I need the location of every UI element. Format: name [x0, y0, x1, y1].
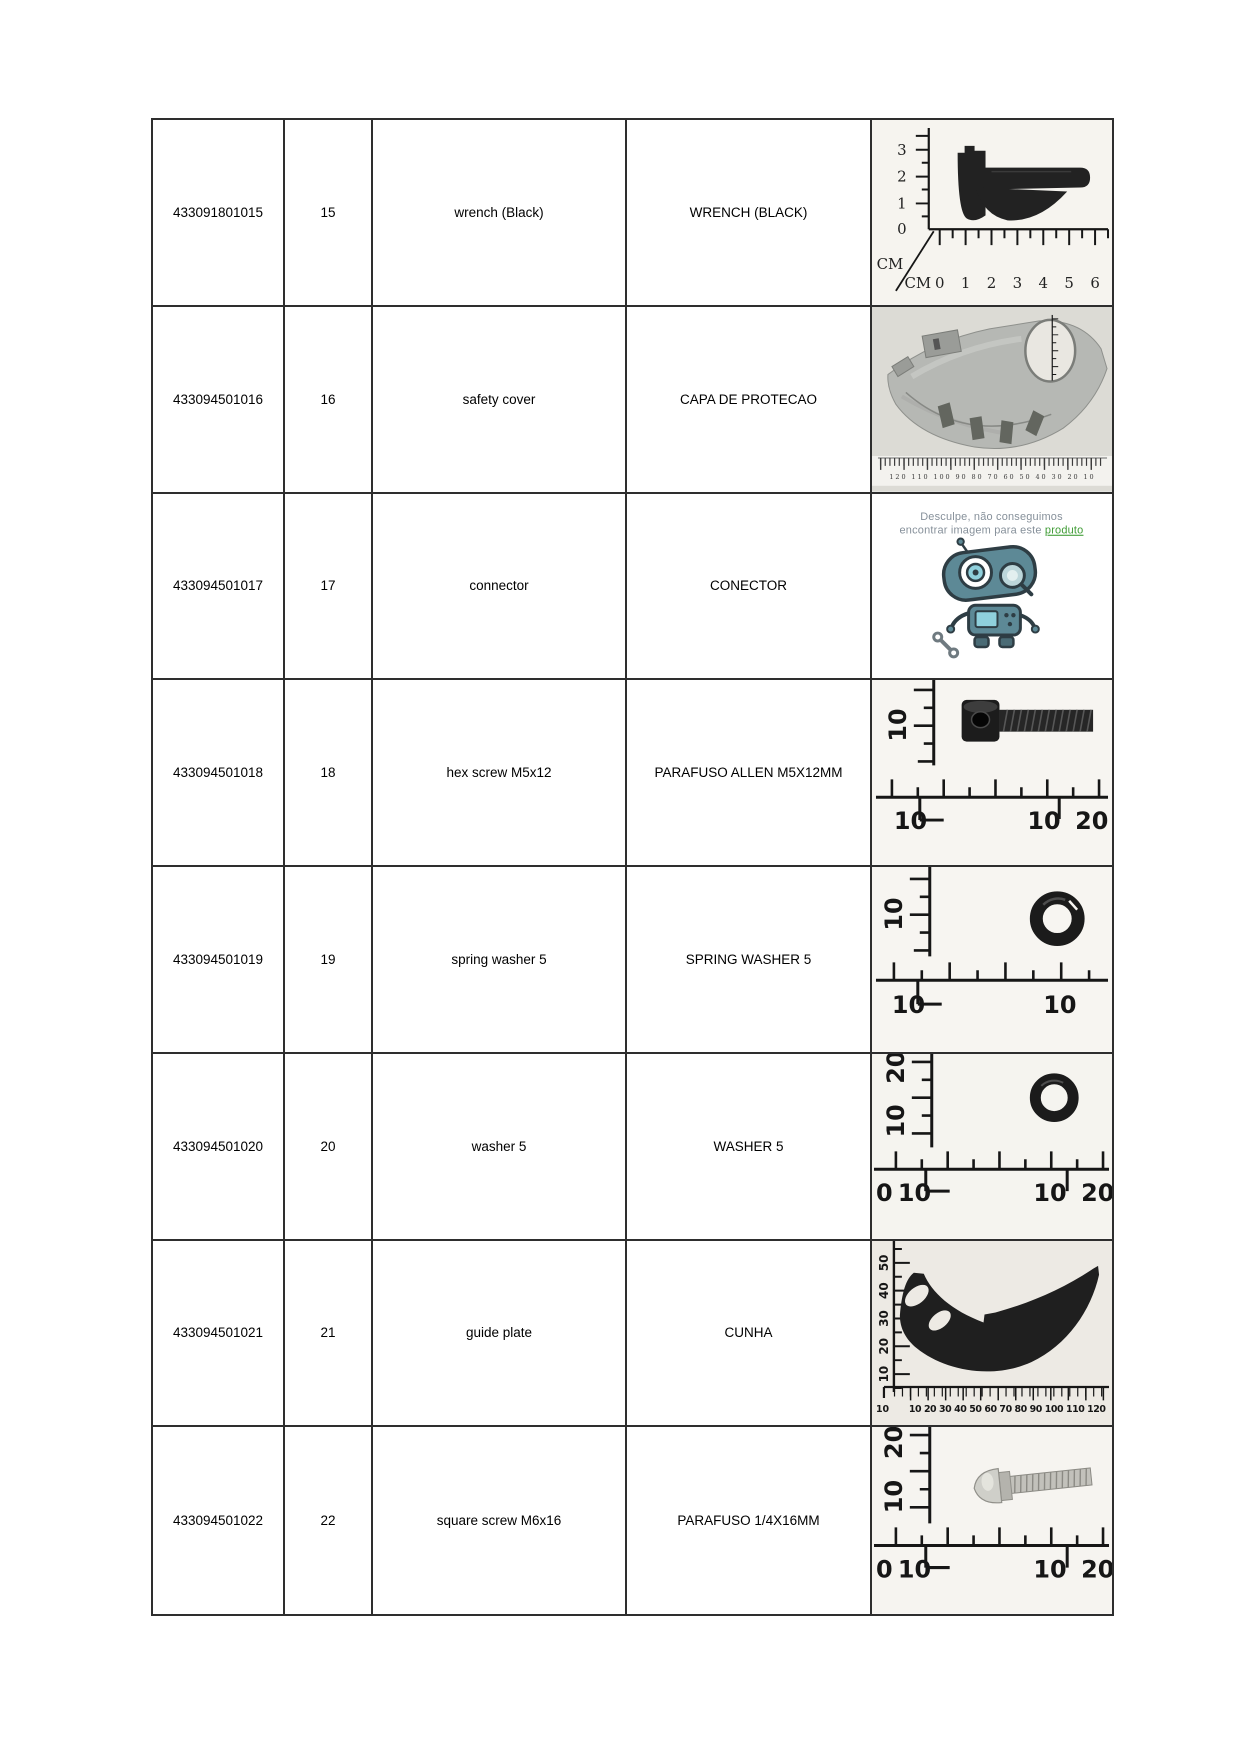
ruler-label: 20	[882, 1054, 910, 1084]
item-number: 22	[285, 1427, 373, 1614]
item-number: 19	[285, 867, 373, 1052]
description-pt: PARAFUSO ALLEN M5X12MM	[627, 680, 872, 865]
item-number: 18	[285, 680, 373, 865]
ruler-label: 0	[876, 1179, 893, 1207]
ruler-label: 10	[880, 1480, 908, 1514]
placeholder-text-line2: encontrar imagem para este produto	[900, 524, 1084, 536]
ruler-label: 10	[876, 1403, 890, 1414]
ruler-label: 10	[894, 807, 927, 835]
square-screw-photo: 20 10 0 10 10 20	[872, 1427, 1112, 1614]
part-number: 433094501021	[153, 1241, 285, 1426]
item-number: 21	[285, 1241, 373, 1426]
product-photo-wrench: 3 2 1 0 CM CM 0 1 2 3 4 5 6	[872, 120, 1112, 305]
washer-photo: 20 10 0 10 10 20	[872, 1054, 1112, 1239]
part-number: 433094501022	[153, 1427, 285, 1614]
ruler-label: 2	[987, 274, 996, 292]
ruler-scale: 10 20 30 40 50 60 70 80 90 100 110 120	[909, 1403, 1107, 1414]
description-pt: CUNHA	[627, 1241, 872, 1426]
product-photo-washer: 20 10 0 10 10 20	[872, 1054, 1112, 1239]
description-pt: CAPA DE PROTECAO	[627, 307, 872, 492]
ruler-label: 20	[1075, 807, 1108, 835]
description-en: spring washer 5	[373, 867, 627, 1052]
table-row: 433094501019 19 spring washer 5 SPRING W…	[153, 867, 1112, 1054]
no-image-placeholder: Desculpe, não conseguimos encontrar imag…	[872, 494, 1112, 679]
description-en: guide plate	[373, 1241, 627, 1426]
product-photo-guide-plate: 50 40 30 20 10 10 10 20 30 40 50 60 70	[872, 1241, 1112, 1426]
description-en: safety cover	[373, 307, 627, 492]
table-row: 433094501021 21 guide plate CUNHA 50 40 …	[153, 1241, 1112, 1428]
ruler-label: 10	[1033, 1179, 1066, 1207]
description-pt: WRENCH (BLACK)	[627, 120, 872, 305]
ruler-label: 5	[1064, 274, 1073, 292]
ruler-label: 10	[877, 1365, 891, 1382]
ruler-label: 0	[897, 220, 906, 238]
ruler-label: 30	[877, 1310, 891, 1327]
ruler-label: 50	[877, 1254, 891, 1271]
no-image-illustration: Desculpe, não conseguimos encontrar imag…	[872, 494, 1112, 679]
part-number: 433094501018	[153, 680, 285, 865]
guide-plate-photo: 50 40 30 20 10 10 10 20 30 40 50 60 70	[872, 1241, 1112, 1426]
wrench-photo: 3 2 1 0 CM CM 0 1 2 3 4 5 6	[872, 120, 1112, 305]
item-number: 20	[285, 1054, 373, 1239]
item-number: 16	[285, 307, 373, 492]
description-pt: WASHER 5	[627, 1054, 872, 1239]
item-number: 15	[285, 120, 373, 305]
product-photo-square-screw: 20 10 0 10 10 20	[872, 1427, 1112, 1614]
part-number: 433094501016	[153, 307, 285, 492]
placeholder-text-line1: Desculpe, não conseguimos	[920, 510, 1063, 522]
spring-washer-photo: 10 10 10	[872, 867, 1112, 1052]
description-pt: SPRING WASHER 5	[627, 867, 872, 1052]
table-row: 433094501016 16 safety cover CAPA DE PRO…	[153, 307, 1112, 494]
product-photo-hex-screw: 10 10 10 20	[872, 680, 1112, 865]
product-photo-safety-cover: 120 110 100 90 80 70 60 50 40 30 20 10	[872, 307, 1112, 492]
produto-link: produto	[1045, 524, 1084, 536]
description-pt: PARAFUSO 1/4X16MM	[627, 1427, 872, 1614]
bottom-ruler: 120 110 100 90 80 70 60 50 40 30 20 10	[872, 456, 1112, 486]
ruler-label: 10	[1033, 1556, 1066, 1584]
table-row: 433094501017 17 connector CONECTOR Descu…	[153, 494, 1112, 681]
ruler-label: 10	[880, 897, 908, 930]
ruler-label: 20	[877, 1338, 891, 1355]
ruler-label: 20	[1081, 1556, 1112, 1584]
description-en: connector	[373, 494, 627, 679]
part-number: 433094501017	[153, 494, 285, 679]
ruler-label: 20	[1081, 1179, 1112, 1207]
description-en: square screw M6x16	[373, 1427, 627, 1614]
ruler-label: 10	[884, 709, 912, 742]
ruler-label: 10	[898, 1556, 931, 1584]
ruler-label: 20	[880, 1427, 908, 1459]
item-number: 17	[285, 494, 373, 679]
ruler-label: CM	[877, 255, 904, 273]
hex-screw-photo: 10 10 10 20	[872, 680, 1112, 865]
table-row: 433094501018 18 hex screw M5x12 PARAFUSO…	[153, 680, 1112, 867]
part-number: 433094501019	[153, 867, 285, 1052]
ruler-label: 10	[1027, 807, 1060, 835]
description-en: wrench (Black)	[373, 120, 627, 305]
ruler-label: 40	[877, 1282, 891, 1299]
part-number: 433091801015	[153, 120, 285, 305]
ruler-label: 4	[1039, 274, 1048, 292]
ruler-label: 3	[1013, 274, 1022, 292]
ruler-label: 6	[1090, 274, 1099, 292]
product-photo-spring-washer: 10 10 10	[872, 867, 1112, 1052]
ruler-label: 10	[892, 991, 925, 1019]
ruler-label: 1	[961, 274, 970, 292]
ruler-label: 10	[898, 1179, 931, 1207]
ruler-label: 1	[897, 194, 906, 212]
description-en: hex screw M5x12	[373, 680, 627, 865]
ruler-label: 2	[897, 168, 906, 186]
ruler-scale: 120 110 100 90 80 70 60 50 40 30 20 10	[889, 473, 1093, 481]
description-pt: CONECTOR	[627, 494, 872, 679]
part-number: 433094501020	[153, 1054, 285, 1239]
ruler-label: CM	[904, 274, 931, 292]
table-row: 433091801015 15 wrench (Black) WRENCH (B…	[153, 120, 1112, 307]
table-row: 433094501022 22 square screw M6x16 PARAF…	[153, 1427, 1112, 1614]
table-row: 433094501020 20 washer 5 WASHER 5 20 10 …	[153, 1054, 1112, 1241]
parts-table: 433091801015 15 wrench (Black) WRENCH (B…	[151, 118, 1114, 1616]
ruler-label: 10	[1043, 991, 1076, 1019]
ruler-label: 0	[935, 274, 944, 292]
ruler-label: 10	[882, 1104, 910, 1137]
ruler-label: 0	[876, 1556, 893, 1584]
ruler-label: 3	[897, 141, 906, 159]
description-en: washer 5	[373, 1054, 627, 1239]
safety-cover-photo: 120 110 100 90 80 70 60 50 40 30 20 10	[872, 307, 1112, 492]
